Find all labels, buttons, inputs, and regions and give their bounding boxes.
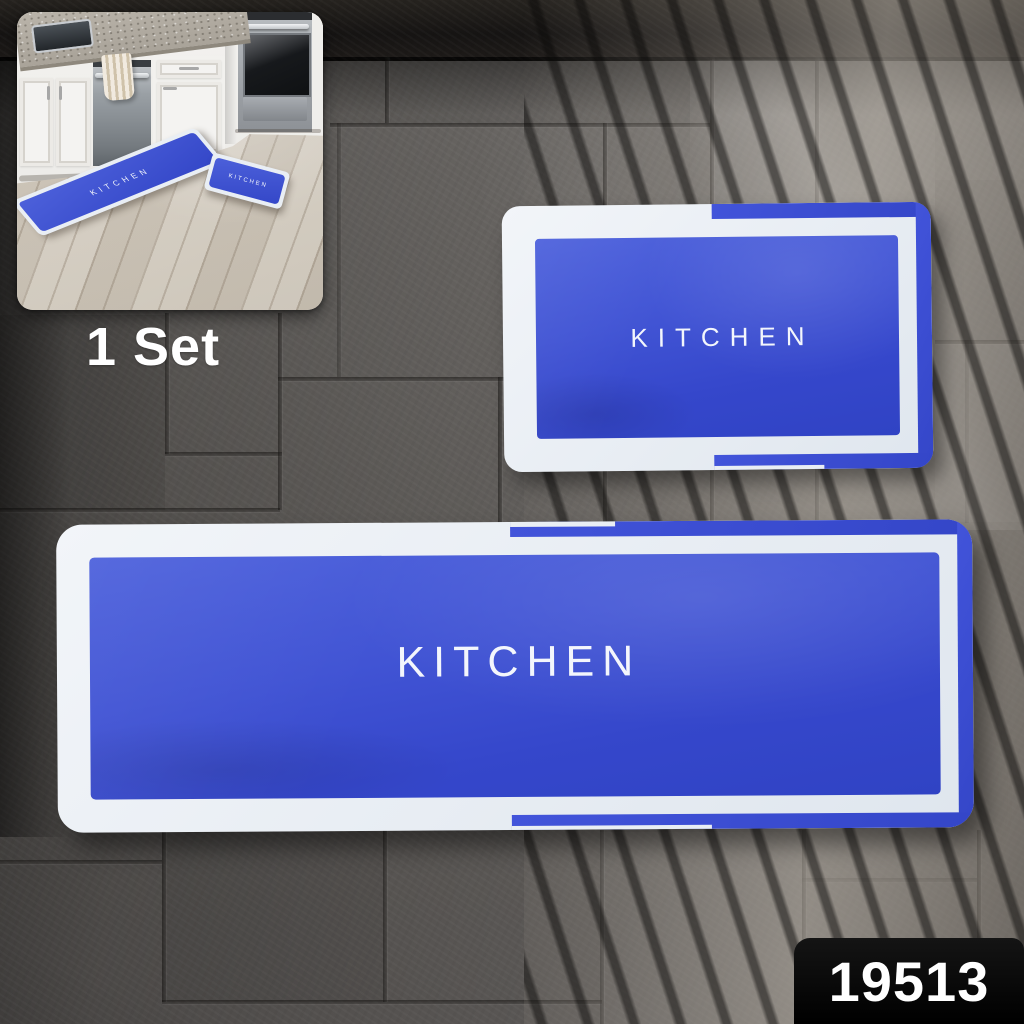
cabinet-door [56,78,90,166]
mat-label: KITCHEN [88,166,153,197]
inset-photo-thumbnail: KITCHEN KITCHEN [17,12,323,310]
mat-label: KITCHEN [228,173,269,189]
mat-border-blue-top [712,202,931,219]
kitchen-mat-small: KITCHEN [502,202,934,472]
oven-door [243,33,311,97]
drawer-front [157,60,221,78]
mat-border-blue-right [957,519,974,827]
mat-blue-center: KITCHEN [89,552,940,799]
cabinet-handle [47,86,50,100]
mat-blue-center: KITCHEN [535,235,900,439]
drawer-handle [179,67,199,70]
hand-towel [101,53,135,101]
kitchen-mat-large: KITCHEN [56,519,974,833]
product-code-badge: 19513 [794,938,1024,1024]
stone-veining [524,0,1024,1024]
product-code: 19513 [829,949,990,1014]
cabinet-handle [163,87,177,90]
cabinet-door [20,78,53,166]
mat-border-blue-right [916,202,934,468]
kitchen-sink [31,18,94,53]
cabinet-handle [59,86,62,100]
range-control-panel [238,12,312,20]
set-count-label: 1 Set [86,316,220,378]
product-photo: KITCHEN KITCHEN 1 Set KITCHEN KITCHEN 1 [0,0,1024,1024]
oven-drawer [243,97,307,121]
toe-kick-shadow [235,129,321,133]
mat-label: KITCHEN [630,320,814,353]
cabinet-stile [312,12,323,138]
oven-handle [241,24,309,29]
mat-label: KITCHEN [396,637,641,687]
mat-border-white-sliver [510,521,615,527]
